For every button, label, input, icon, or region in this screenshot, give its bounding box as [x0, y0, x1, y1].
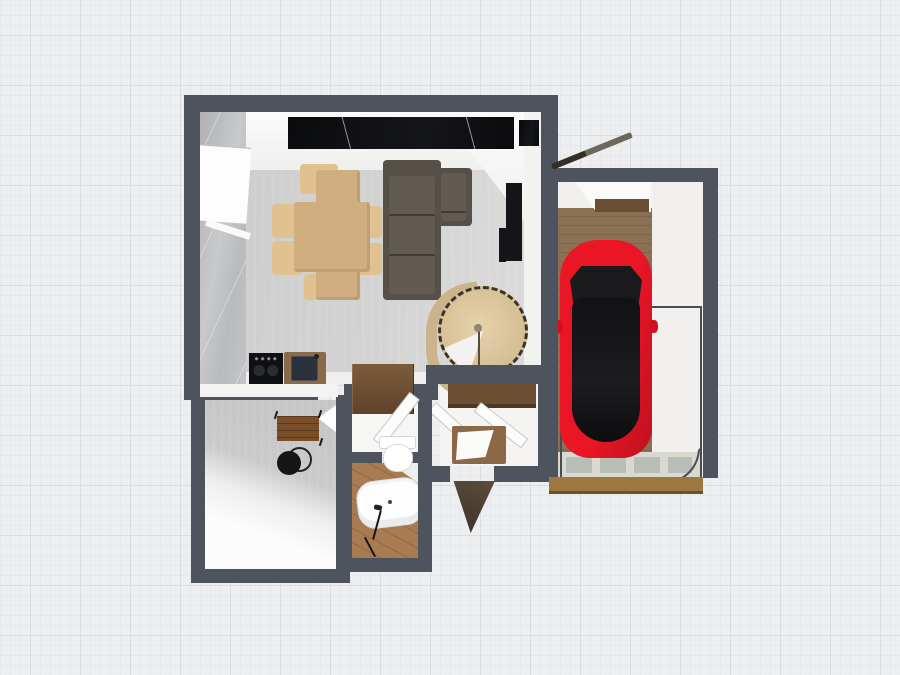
kitchen-counter-top-small[interactable] [519, 120, 539, 146]
wall-office-bottom[interactable] [191, 569, 350, 583]
wall-bath-bottom[interactable] [336, 558, 432, 572]
front-door-leaf[interactable] [450, 481, 495, 533]
sofa-cushions [389, 176, 435, 294]
wall-entry-top[interactable] [426, 365, 552, 384]
wall-hall-right[interactable] [418, 384, 432, 572]
kitchen-counter-top[interactable] [288, 117, 514, 149]
wall-lr-top[interactable] [184, 95, 557, 112]
wall-office-left[interactable] [191, 398, 205, 583]
toilet[interactable] [383, 444, 413, 472]
sofa-chaise-cushion [441, 173, 466, 221]
wall-garage-right[interactable] [703, 168, 718, 478]
entry-shelf[interactable] [448, 384, 536, 408]
open-door-leaf[interactable] [551, 132, 633, 170]
garage-beam [595, 199, 649, 212]
wall-garage-top[interactable] [545, 168, 718, 182]
spiral-stair-pole [474, 324, 482, 332]
dining-table-ext[interactable] [294, 202, 370, 272]
tv-panel[interactable] [506, 183, 522, 261]
wall-hall-left[interactable] [336, 395, 352, 572]
kitchen-counter-front [200, 384, 338, 397]
sink-faucet [314, 354, 319, 359]
window[interactable] [194, 144, 251, 223]
wall-bath-divider-a[interactable] [348, 452, 382, 463]
wall-lr-left[interactable] [184, 95, 200, 400]
cooktop[interactable] [249, 353, 283, 385]
car-roof [572, 298, 640, 442]
spiral-staircase[interactable] [438, 286, 528, 376]
tub-drain [388, 500, 392, 504]
desk[interactable] [277, 416, 319, 441]
tv-panel-small[interactable] [499, 228, 506, 262]
office-chair[interactable] [277, 451, 301, 475]
car-mirror-right [649, 320, 658, 333]
floorplan-canvas[interactable] [0, 0, 900, 675]
wall-entry-bottom-b[interactable] [494, 466, 552, 482]
kitchen-sink-basin [291, 356, 318, 381]
wall-garage-left[interactable] [545, 182, 558, 478]
garage-threshold[interactable] [549, 477, 703, 494]
